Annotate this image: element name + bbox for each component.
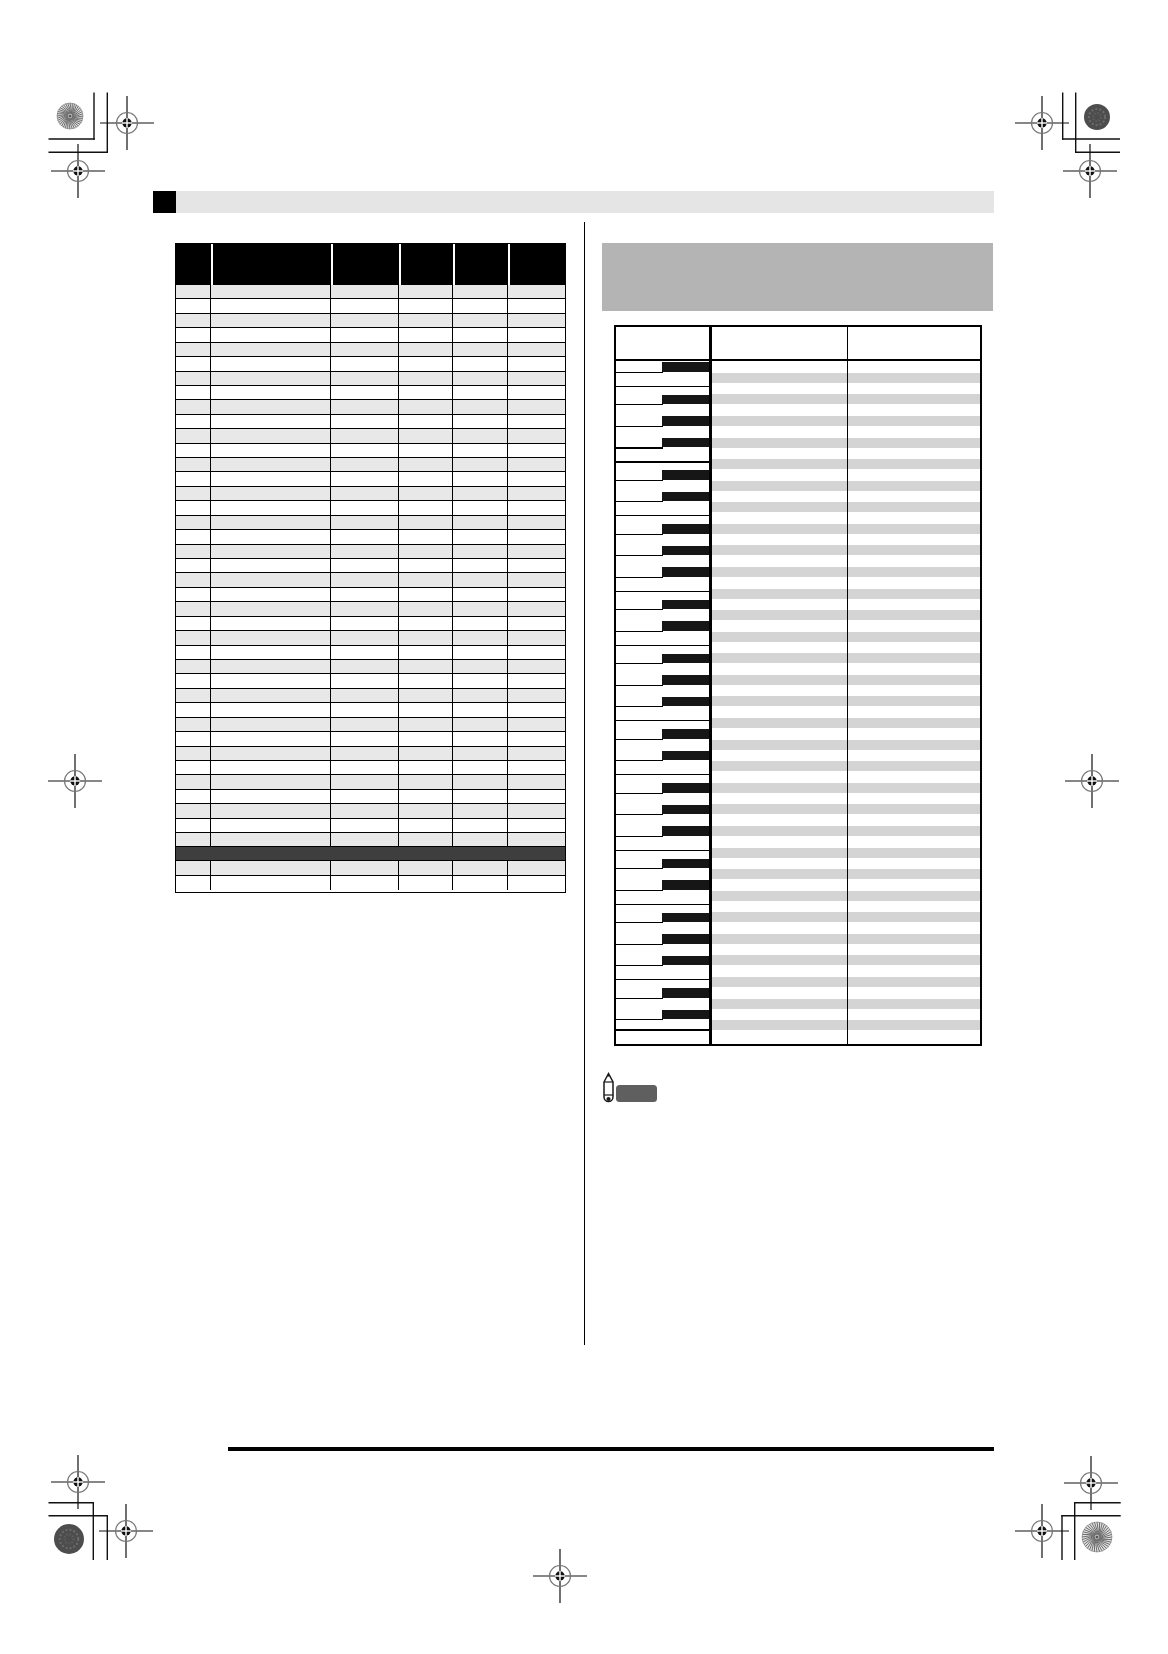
black-key <box>662 492 709 501</box>
table-cell <box>211 386 331 399</box>
color-control-dot <box>58 112 69 114</box>
table-cell <box>399 372 453 385</box>
table-cell <box>176 530 211 543</box>
table-cell <box>331 501 399 514</box>
table-cell <box>176 660 211 673</box>
footer-rule <box>228 1447 994 1452</box>
table-cell <box>176 545 211 558</box>
table-cell <box>399 501 453 514</box>
row-stripe <box>712 610 980 620</box>
black-key <box>662 1010 709 1019</box>
black-key <box>662 956 709 965</box>
table-cell <box>508 617 565 630</box>
table-cell <box>453 646 508 659</box>
table-cell <box>211 660 331 673</box>
black-key <box>662 675 709 684</box>
table-cell <box>508 516 565 529</box>
table-cell <box>211 458 331 471</box>
table-cell <box>211 703 331 716</box>
table-row <box>176 732 565 746</box>
color-control-dot <box>1087 1537 1094 1549</box>
color-control-dot <box>64 105 71 114</box>
white-key-line <box>616 386 709 387</box>
table-cell <box>211 804 331 817</box>
registration-mark <box>116 1521 137 1542</box>
table-cell <box>211 559 331 572</box>
table-cell <box>176 761 211 774</box>
table-cell <box>508 660 565 673</box>
table-cell <box>399 343 453 356</box>
registration-mark <box>1086 1478 1095 1487</box>
table-cell <box>453 761 508 774</box>
white-key-line <box>616 534 663 535</box>
color-control-dot <box>68 118 72 129</box>
table-cell <box>399 775 453 788</box>
table-row <box>176 646 565 660</box>
table-cell <box>211 530 331 543</box>
table-cell <box>176 559 211 572</box>
color-control-dot <box>72 106 78 116</box>
table-row <box>176 530 565 544</box>
table-cell <box>453 501 508 514</box>
black-key <box>662 438 709 447</box>
table-cell <box>211 444 331 457</box>
color-control-dot <box>66 117 68 128</box>
highlight-row <box>176 847 565 861</box>
table-row <box>176 444 565 458</box>
table-row <box>176 458 565 472</box>
color-control-dot <box>72 110 81 117</box>
table-cell <box>508 761 565 774</box>
table-row <box>176 833 565 847</box>
black-key <box>662 934 709 943</box>
table-cell <box>211 602 331 615</box>
table-cell <box>399 545 453 558</box>
row-stripe <box>712 675 980 685</box>
row-stripe <box>712 416 980 426</box>
table-cell <box>508 674 565 687</box>
table-cell <box>176 573 211 586</box>
table-cell <box>453 617 508 630</box>
table-cell <box>453 372 508 385</box>
registration-mark <box>1085 166 1094 175</box>
table-cell <box>176 833 211 846</box>
color-control-dot <box>69 118 75 128</box>
page <box>0 0 1168 1654</box>
white-key-line <box>616 591 709 592</box>
table-cell <box>399 689 453 702</box>
color-control-dot <box>1082 1535 1095 1537</box>
black-key <box>662 621 709 630</box>
table-cell <box>331 819 399 832</box>
table-row <box>176 761 565 775</box>
table-cell <box>508 588 565 601</box>
row-stripe <box>712 977 980 987</box>
table-cell <box>211 285 331 298</box>
table-row <box>176 689 565 703</box>
table-cell <box>211 487 331 500</box>
registration-mark <box>70 776 79 785</box>
black-key <box>662 524 709 533</box>
table-cell <box>453 876 508 890</box>
table-cell <box>399 861 453 874</box>
table-cell <box>508 861 565 874</box>
table-cell <box>453 559 508 572</box>
table-cell <box>508 602 565 615</box>
table-cell <box>211 588 331 601</box>
table-cell <box>453 328 508 341</box>
color-control-dot <box>1096 1539 1102 1551</box>
row-stripe <box>712 545 980 555</box>
table-cell <box>176 343 211 356</box>
table-cell <box>211 775 331 788</box>
table-cell <box>211 718 331 731</box>
table-cell <box>453 530 508 543</box>
table-cell <box>399 357 453 370</box>
color-control-dot <box>1083 1532 1096 1535</box>
registration-mark <box>117 113 138 134</box>
white-key-line <box>616 577 663 578</box>
table-cell <box>508 429 565 442</box>
color-control-dot <box>1095 1535 1098 1538</box>
table-cell <box>331 732 399 745</box>
table-cell <box>331 444 399 457</box>
color-control-dot <box>1086 1536 1095 1546</box>
table-cell <box>453 429 508 442</box>
header-cell-separator <box>399 244 401 285</box>
row-stripe <box>712 373 980 383</box>
color-control-dot <box>1098 1539 1111 1542</box>
title-bar-marker <box>153 191 176 213</box>
table-cell <box>453 314 508 327</box>
row-stripe <box>712 632 980 642</box>
table-cell <box>453 819 508 832</box>
table-cell <box>176 819 211 832</box>
table-cell <box>211 732 331 745</box>
white-key-line <box>616 447 663 448</box>
black-key <box>662 729 709 738</box>
table-cell <box>176 357 211 370</box>
row-stripe <box>712 502 980 512</box>
registration-mark <box>68 161 89 182</box>
color-control-dot <box>68 103 72 114</box>
black-key <box>662 805 709 814</box>
table-cell <box>508 314 565 327</box>
row-stripe <box>712 438 980 448</box>
color-control-dot <box>1099 1523 1102 1536</box>
table-cell <box>453 400 508 413</box>
table-cell <box>399 617 453 630</box>
color-control-dot <box>1090 1524 1098 1535</box>
table-cell <box>508 804 565 817</box>
keyboard-assignment-table <box>614 325 982 1046</box>
table-cell <box>176 314 211 327</box>
table-cell <box>399 804 453 817</box>
table-row <box>176 790 565 804</box>
row-stripe <box>712 740 980 750</box>
table-cell <box>453 487 508 500</box>
white-key-line <box>616 904 709 905</box>
table-cell <box>399 559 453 572</box>
table-cell <box>176 400 211 413</box>
table-cell <box>399 285 453 298</box>
table-cell <box>331 545 399 558</box>
table-cell <box>508 530 565 543</box>
table-cell <box>508 718 565 731</box>
table-cell <box>176 299 211 312</box>
color-control-dot <box>66 104 72 114</box>
table-cell <box>508 732 565 745</box>
color-control-dot <box>1099 1537 1112 1539</box>
table-cell <box>399 415 453 428</box>
black-key <box>662 859 709 868</box>
table-cell <box>331 775 399 788</box>
table-cell <box>176 516 211 529</box>
note-badge <box>616 1085 658 1102</box>
table-cell <box>399 400 453 413</box>
table-row <box>176 617 565 631</box>
page-column-divider <box>584 222 585 1345</box>
color-control-dot <box>1097 1522 1099 1535</box>
color-control-dot <box>1089 109 1105 125</box>
color-control-dot <box>1095 1539 1097 1552</box>
table-cell <box>331 487 399 500</box>
table-cell <box>331 328 399 341</box>
table-cell <box>453 516 508 529</box>
black-key <box>662 362 709 371</box>
color-control-dot <box>57 103 83 129</box>
table-cell <box>331 617 399 630</box>
color-control-dot <box>72 104 74 115</box>
registration-mark <box>68 1472 89 1493</box>
color-control-dot <box>62 116 68 126</box>
table-row <box>176 602 565 616</box>
white-key-line <box>616 609 663 610</box>
table-cell <box>453 343 508 356</box>
table-cell <box>331 516 399 529</box>
color-control-dot <box>58 115 68 121</box>
table-cell <box>508 747 565 760</box>
table-cell <box>331 588 399 601</box>
black-key <box>662 751 709 760</box>
color-control-dot <box>1092 1538 1095 1551</box>
table-cell <box>211 631 331 644</box>
table-cell <box>508 487 565 500</box>
table-row <box>176 718 565 732</box>
color-control-dot <box>69 118 76 127</box>
white-key-line <box>616 461 709 462</box>
table-row <box>176 429 565 443</box>
black-key <box>662 913 709 922</box>
table-cell <box>331 386 399 399</box>
table-cell <box>331 472 399 485</box>
color-control-dot <box>70 118 81 122</box>
table-cell <box>331 703 399 716</box>
color-control-dot <box>60 1530 79 1549</box>
table-cell <box>176 429 211 442</box>
table-cell <box>399 819 453 832</box>
table-row <box>176 285 565 299</box>
color-control-dot <box>72 114 83 118</box>
registration-mark <box>1032 113 1053 134</box>
table-cell <box>211 689 331 702</box>
registration-mark <box>1037 1526 1046 1535</box>
table-cell <box>508 775 565 788</box>
table-cell <box>399 876 453 890</box>
table-cell <box>399 703 453 716</box>
table-cell <box>453 357 508 370</box>
table-row <box>176 747 565 761</box>
table-cell <box>399 573 453 586</box>
white-key-line <box>616 868 663 869</box>
black-key <box>662 470 709 479</box>
row-stripe <box>712 653 980 663</box>
table-cell <box>176 501 211 514</box>
table-cell <box>211 314 331 327</box>
color-control-dot <box>1099 1526 1106 1538</box>
color-control-dot <box>65 1535 74 1544</box>
table-cell <box>331 559 399 572</box>
table-cell <box>331 861 399 874</box>
row-stripe <box>712 459 980 469</box>
table-cell <box>176 790 211 803</box>
black-key <box>662 826 709 835</box>
black-key <box>662 988 709 997</box>
keyboard-bottom-line <box>616 1029 709 1030</box>
white-key-line <box>616 814 663 815</box>
table-row <box>176 472 565 486</box>
table-cell <box>399 429 453 442</box>
table-cell <box>453 602 508 615</box>
table-cell <box>211 747 331 760</box>
table-cell <box>399 472 453 485</box>
row-stripe <box>712 891 980 901</box>
color-control-dot <box>64 116 68 127</box>
table-cell <box>211 545 331 558</box>
table-cell <box>176 861 211 874</box>
table-row <box>176 501 565 515</box>
table-cell <box>453 299 508 312</box>
row-stripe <box>712 696 980 706</box>
header-cell-separator <box>211 244 213 285</box>
table-cell <box>331 429 399 442</box>
table-row <box>176 299 565 313</box>
table-cell <box>399 631 453 644</box>
white-key-line <box>616 998 663 999</box>
table-cell <box>176 415 211 428</box>
keyboard-column-divider <box>709 327 713 1044</box>
color-control-dot <box>1097 1539 1109 1546</box>
color-control-dot <box>1097 1539 1110 1544</box>
white-key-line <box>616 480 663 481</box>
table-cell <box>176 458 211 471</box>
row-stripe <box>712 804 980 814</box>
table-cell <box>211 819 331 832</box>
table-cell <box>211 861 331 874</box>
table-cell <box>508 299 565 312</box>
table-cell <box>453 631 508 644</box>
color-control-dot <box>1084 104 1110 130</box>
table-cell <box>331 747 399 760</box>
white-key-line <box>616 372 663 373</box>
color-control-dot <box>1096 1539 1104 1550</box>
table-cell <box>508 819 565 832</box>
table-cell <box>453 588 508 601</box>
table-cell <box>176 328 211 341</box>
table-cell <box>211 472 331 485</box>
table-cell <box>453 804 508 817</box>
table-cell <box>508 372 565 385</box>
table-cell <box>399 790 453 803</box>
black-key <box>662 567 709 576</box>
table-cell <box>331 357 399 370</box>
color-control-dot <box>1082 1535 1095 1539</box>
table-cell <box>176 617 211 630</box>
table-cell <box>399 458 453 471</box>
table-cell <box>453 285 508 298</box>
table-row <box>176 861 565 875</box>
table-row <box>176 415 565 429</box>
table-cell <box>508 285 565 298</box>
white-key-line <box>616 555 663 556</box>
black-key <box>662 395 709 404</box>
table-cell <box>453 747 508 760</box>
table-cell <box>331 761 399 774</box>
table-row <box>176 400 565 414</box>
row-stripe <box>712 848 980 858</box>
white-key-line <box>616 515 709 516</box>
table-cell <box>211 573 331 586</box>
table-cell <box>211 516 331 529</box>
table-row <box>176 819 565 833</box>
table-cell <box>211 400 331 413</box>
table-cell <box>399 646 453 659</box>
white-key-line <box>616 685 663 686</box>
table-cell <box>508 415 565 428</box>
table-row <box>176 703 565 717</box>
registration-mark <box>65 771 86 792</box>
left-data-table <box>175 243 566 893</box>
color-control-dot <box>1099 1530 1110 1538</box>
table-cell <box>508 689 565 702</box>
table-cell <box>331 415 399 428</box>
color-control-dot <box>1099 1532 1111 1538</box>
color-control-dot <box>72 105 76 116</box>
white-key-line <box>616 404 663 405</box>
color-control-dot <box>68 114 71 117</box>
keyboard-assignment-table-body <box>616 327 980 1044</box>
color-control-dot <box>1096 1539 1106 1548</box>
table-cell <box>508 833 565 846</box>
white-key-line <box>616 426 663 427</box>
table-cell <box>453 775 508 788</box>
table-cell <box>176 804 211 817</box>
registration-mark <box>1082 771 1103 792</box>
table-cell <box>399 660 453 673</box>
table-cell <box>331 400 399 413</box>
color-control-dot <box>59 110 70 114</box>
row-stripe <box>712 934 980 944</box>
table-cell <box>453 660 508 673</box>
table-cell <box>508 646 565 659</box>
table-cell <box>331 876 399 890</box>
color-control-dot <box>1087 1526 1097 1535</box>
white-key-line <box>616 793 663 794</box>
table-cell <box>399 516 453 529</box>
black-key <box>662 546 709 555</box>
color-control-dot <box>71 118 82 120</box>
table-cell <box>331 674 399 687</box>
